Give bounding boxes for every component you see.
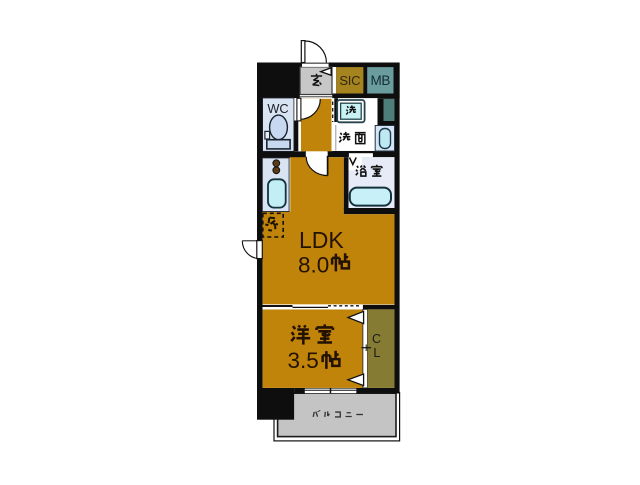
- svg-text:SIC: SIC: [339, 73, 360, 88]
- svg-text:WC: WC: [267, 101, 288, 116]
- svg-text:3.5: 3.5: [288, 348, 319, 373]
- svg-text:L: L: [373, 346, 380, 360]
- svg-text:8.0: 8.0: [298, 253, 329, 278]
- svg-text:MB: MB: [370, 73, 390, 88]
- svg-text:C: C: [372, 332, 381, 346]
- svg-text:LDK: LDK: [299, 227, 344, 253]
